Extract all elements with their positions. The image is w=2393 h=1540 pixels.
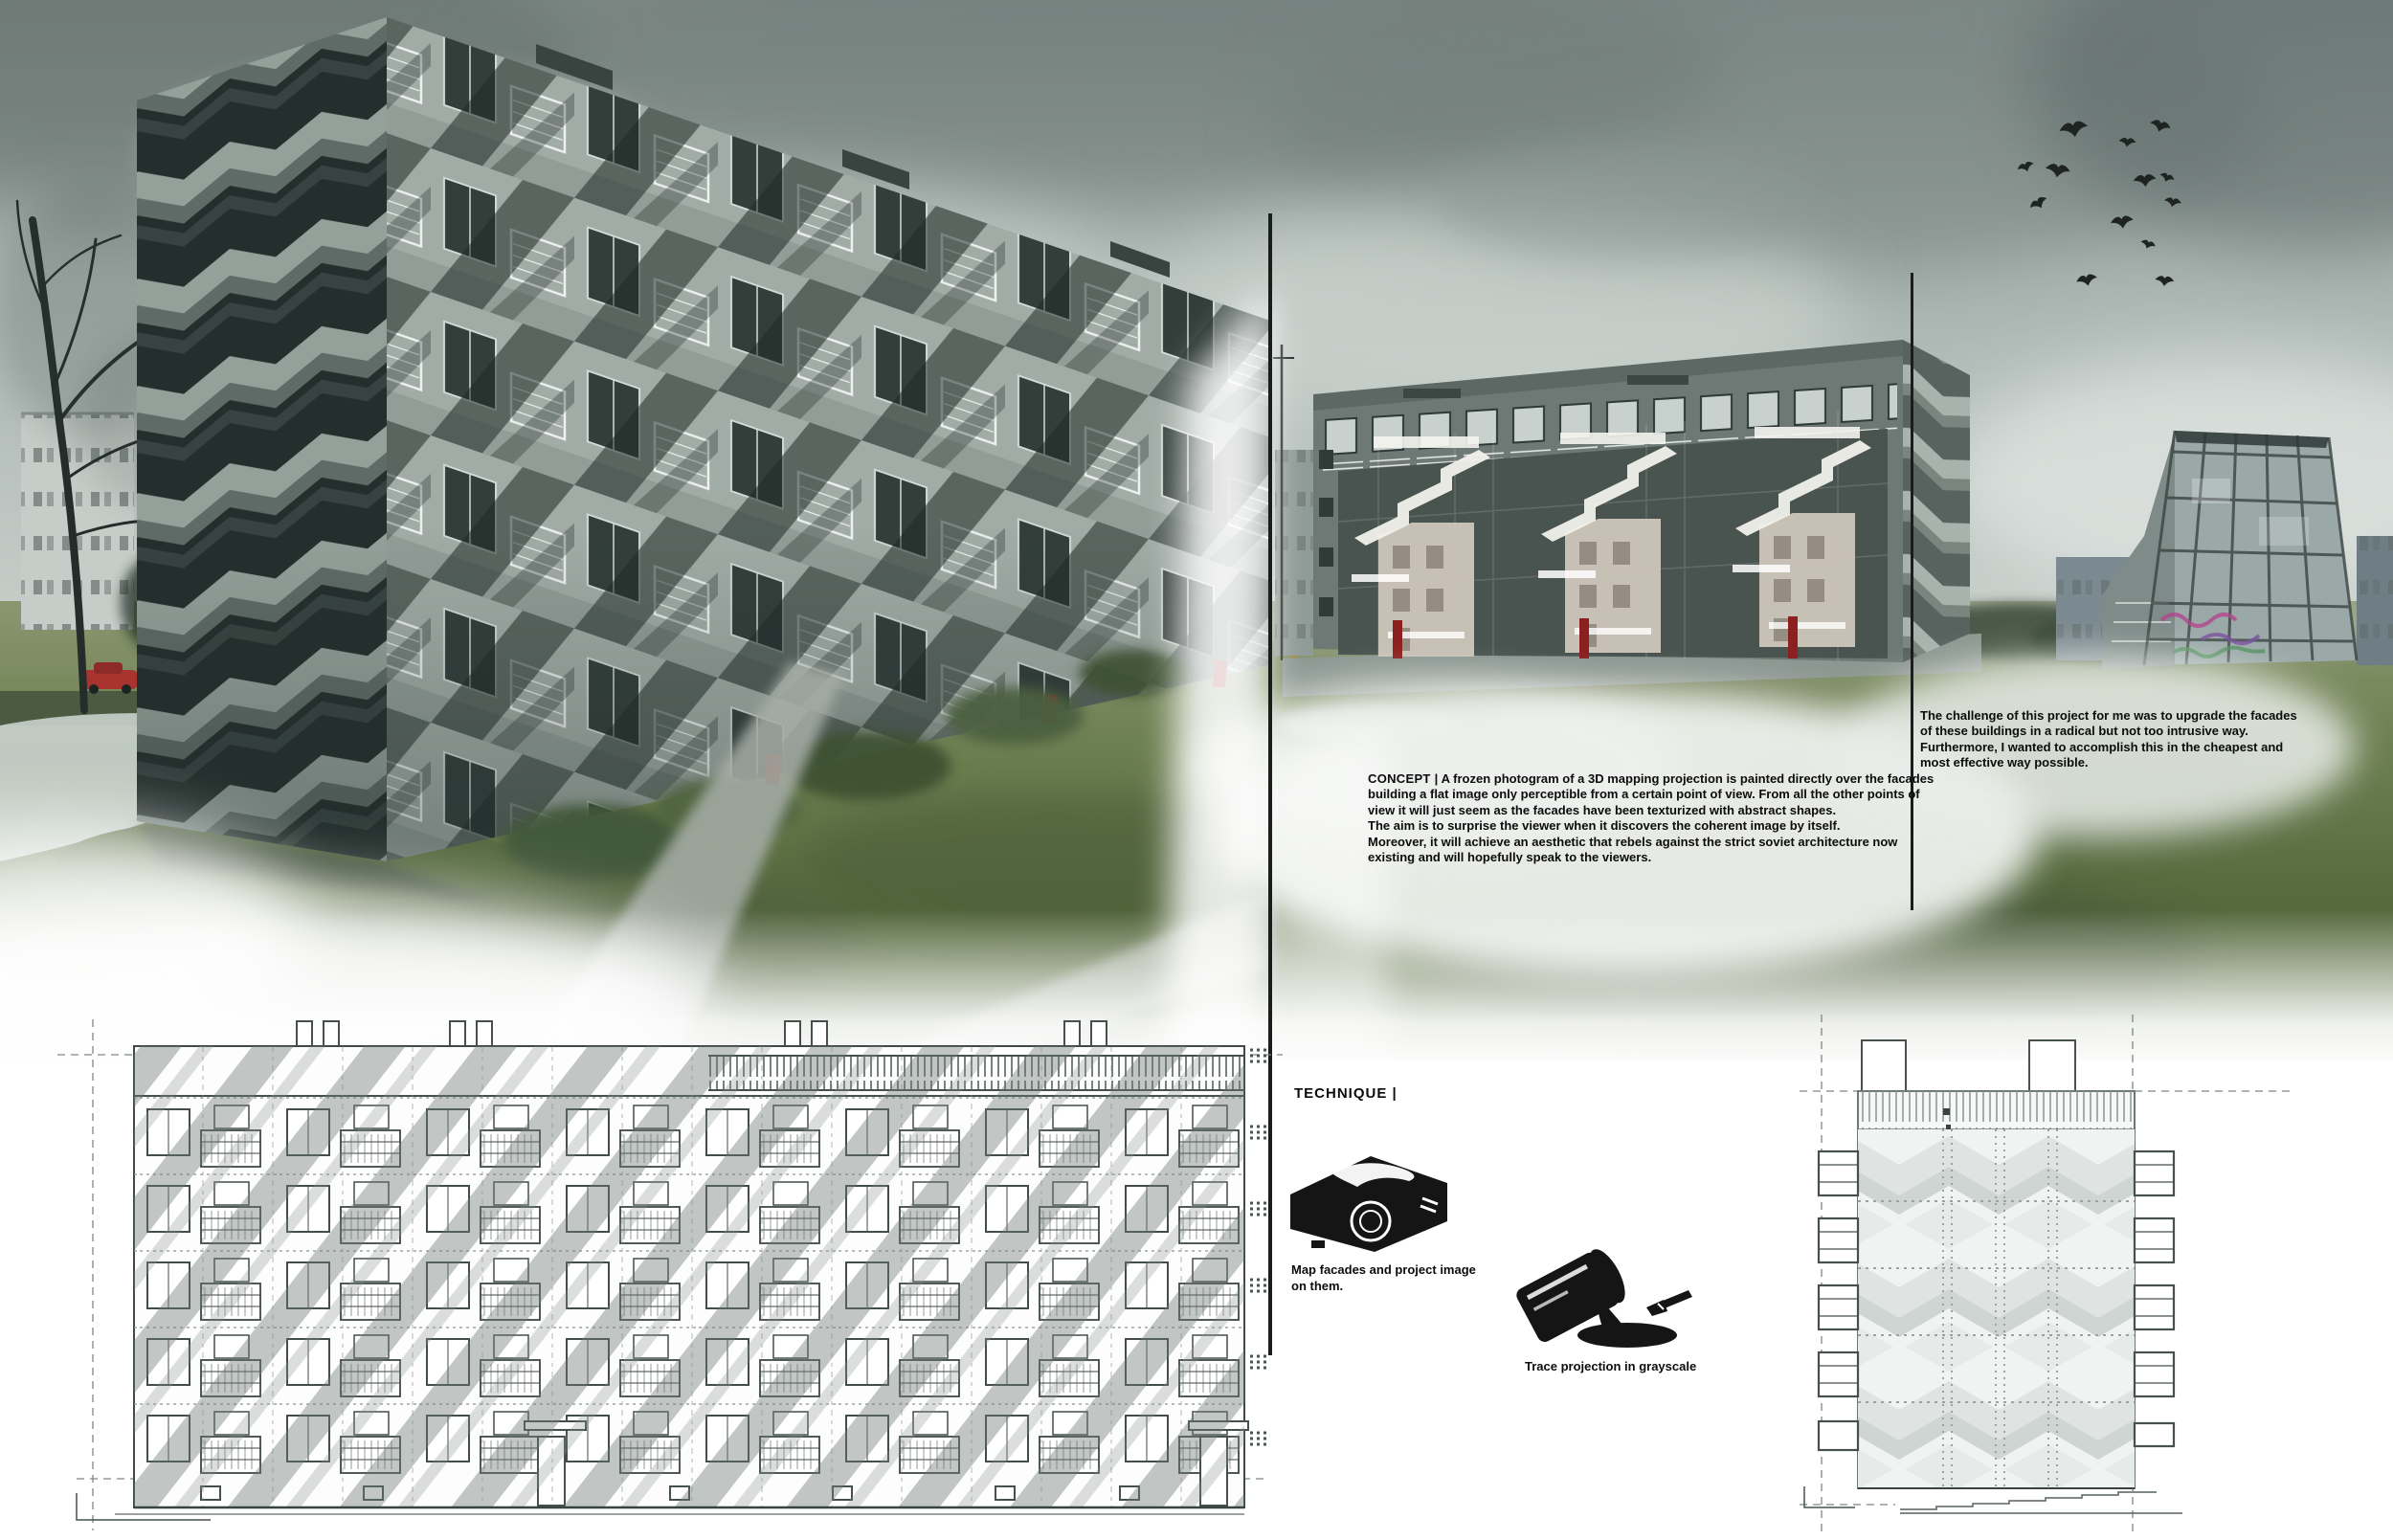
- technique-step2-caption: Trace projection in grayscale: [1525, 1358, 1812, 1374]
- floor-tick-marks: [1250, 1050, 1269, 1444]
- left-elevation-drawing: [57, 1010, 1283, 1540]
- right-elevation-drawing: [1800, 1010, 2297, 1540]
- chimneys: [297, 1021, 1107, 1046]
- stairs-profile: [1800, 1492, 2182, 1513]
- concept-label: CONCEPT |: [1368, 771, 1439, 786]
- architecture-presentation-board: { "palette": { "background": "#ffffff", …: [0, 0, 2393, 1540]
- paint-can-icon: [1514, 1242, 1701, 1350]
- projector-icon: [1283, 1145, 1460, 1260]
- concept-paragraph: CONCEPT | A frozen photogram of a 3D map…: [1368, 771, 1935, 865]
- concept-body: A frozen photogram of a 3D mapping proje…: [1368, 771, 1934, 864]
- challenge-paragraph: The challenge of this project for me was…: [1920, 708, 2301, 771]
- photomontage: [0, 0, 2393, 1072]
- technique-heading: TECHNIQUE |: [1294, 1085, 1398, 1102]
- projection-building-photo: [1283, 340, 1981, 697]
